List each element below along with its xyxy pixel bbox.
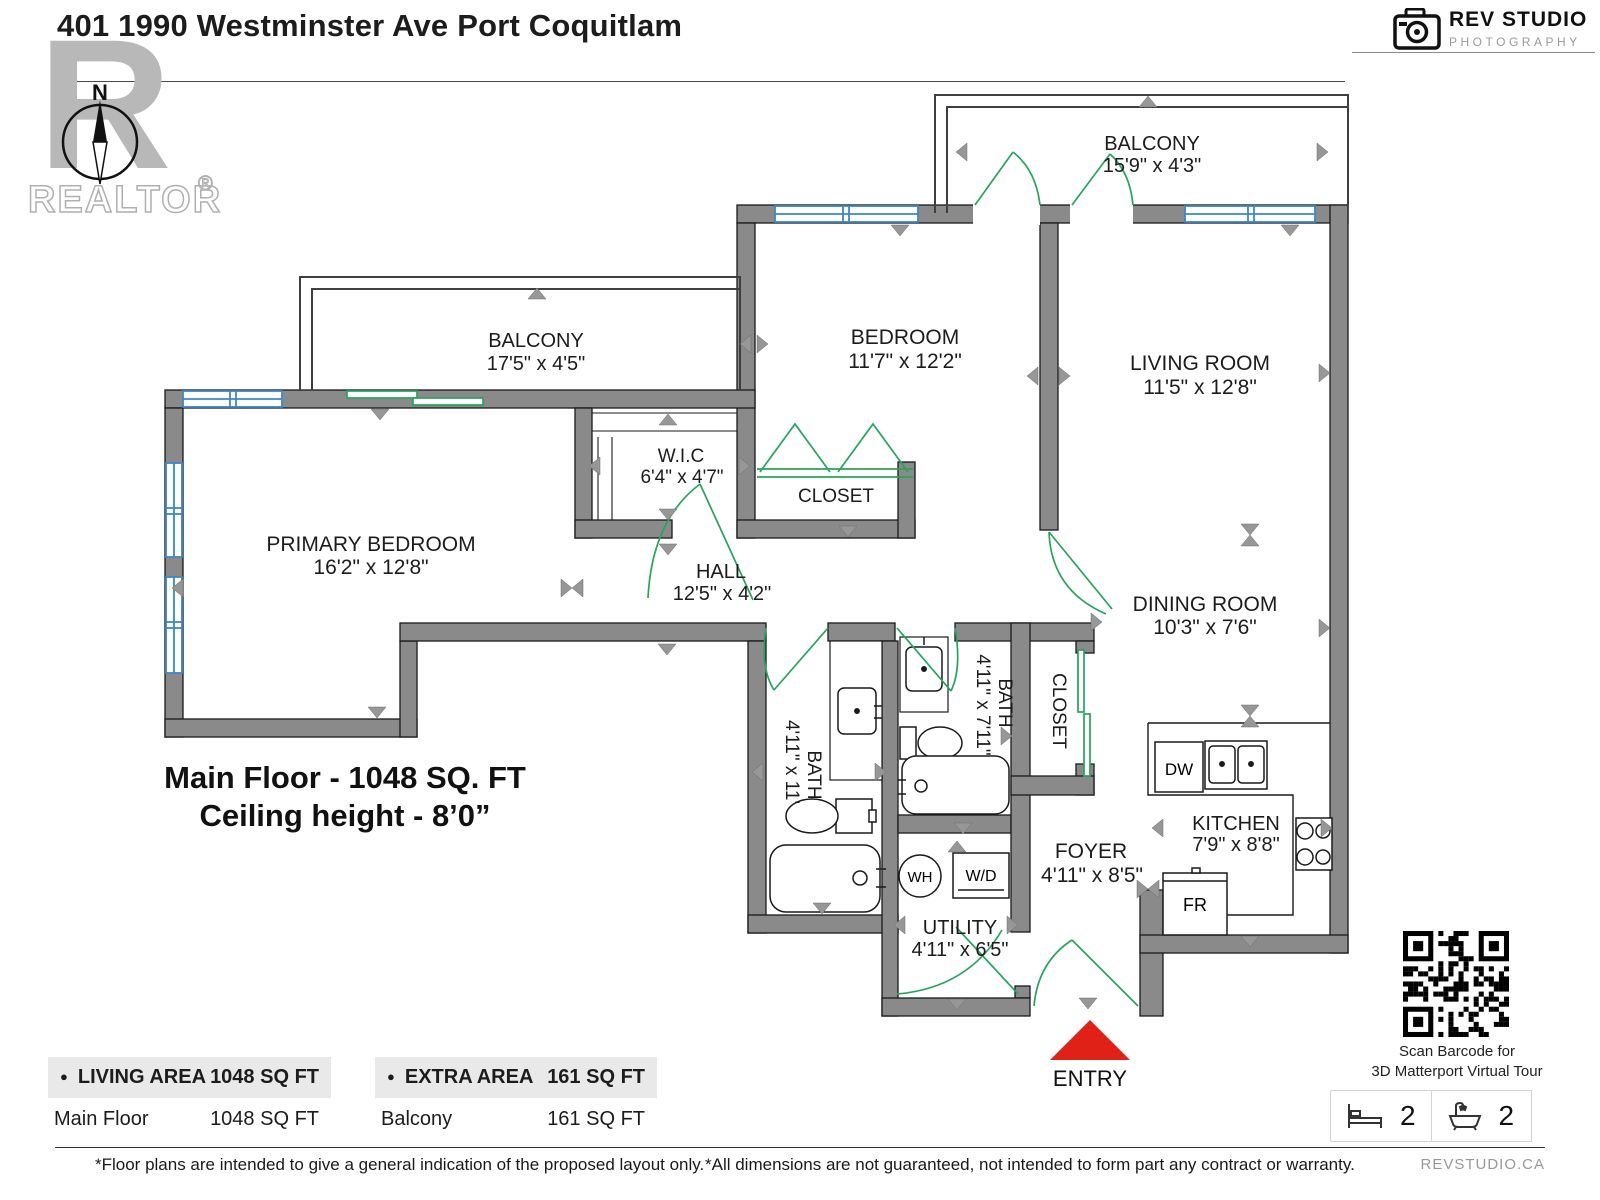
window-primary-top bbox=[183, 391, 282, 407]
label-closet-bedroom: CLOSET bbox=[798, 486, 874, 507]
bath-icon bbox=[1448, 1101, 1482, 1131]
bath-count: 2 bbox=[1498, 1100, 1514, 1132]
bedroom-door bbox=[1049, 532, 1112, 614]
label-bedroom: BEDROOM bbox=[851, 326, 960, 349]
bed-stat: 2 bbox=[1331, 1091, 1431, 1141]
living-area-table: ●LIVING AREA 1048 SQ FT Main Floor 1048 … bbox=[48, 1057, 331, 1131]
label-dining: DINING ROOM bbox=[1133, 593, 1278, 616]
qr-caption-line2: 3D Matterport Virtual Tour bbox=[1342, 1062, 1572, 1082]
entry-door bbox=[1034, 940, 1138, 1006]
dims-utility: 4'11" x 6'5" bbox=[911, 939, 1008, 961]
window-living bbox=[1185, 206, 1315, 222]
label-hall: HALL bbox=[696, 561, 746, 583]
realtor-wordmark: REALTOR bbox=[28, 179, 222, 221]
extra-area-header: ●EXTRA AREA 161 SQ FT bbox=[375, 1057, 657, 1098]
label-bath2: BATH bbox=[994, 678, 1015, 727]
bed-bath-stats: 2 2 bbox=[1330, 1090, 1532, 1142]
row-value: 161 SQ FT bbox=[547, 1108, 645, 1131]
bath1-door bbox=[764, 628, 828, 690]
extra-area-table: ●EXTRA AREA 161 SQ FT Balcony 161 SQ FT bbox=[375, 1057, 657, 1131]
dims-bath1: 4'11" x 11' bbox=[781, 720, 802, 804]
dims-dining: 10'3" x 7'6" bbox=[1153, 616, 1257, 639]
realtor-reg-mark: ® bbox=[198, 173, 213, 195]
bed-count: 2 bbox=[1400, 1100, 1416, 1132]
realtor-logo: R REALTOR ® N bbox=[28, 2, 222, 221]
label-primary: PRIMARY BEDROOM bbox=[266, 533, 475, 556]
dims-primary: 16'2" x 12'8" bbox=[313, 556, 428, 579]
kitchen-sink bbox=[1205, 741, 1267, 789]
dims-balcony-left: 17'5" x 4'5" bbox=[487, 353, 586, 375]
label-closet-foyer: CLOSET bbox=[1048, 673, 1069, 749]
qr-caption-line1: Scan Barcode for bbox=[1342, 1042, 1572, 1062]
floor-summary-line1: Main Floor - 1048 SQ. FT bbox=[164, 760, 526, 795]
extra-area-total: 161 SQ FT bbox=[547, 1066, 645, 1089]
dims-bedroom: 11'7" x 12'2" bbox=[848, 350, 962, 373]
bullet-icon: ● bbox=[60, 1069, 68, 1084]
dims-hall: 12'5" x 4'2" bbox=[673, 583, 772, 605]
label-balcony-left: BALCONY bbox=[488, 330, 584, 352]
dims-wic: 6'4" x 4'7" bbox=[640, 467, 723, 488]
window-primary-left-1 bbox=[166, 463, 182, 557]
qr-caption: Scan Barcode for 3D Matterport Virtual T… bbox=[1342, 1042, 1572, 1082]
extra-area-title: EXTRA AREA bbox=[405, 1066, 534, 1088]
living-area-title: LIVING AREA bbox=[78, 1066, 206, 1088]
label-wic: W.I.C bbox=[658, 446, 704, 467]
label-living: LIVING ROOM bbox=[1130, 352, 1270, 375]
label-dishwasher: DW bbox=[1165, 760, 1193, 779]
bullet-icon: ● bbox=[387, 1069, 395, 1084]
label-foyer: FOYER bbox=[1055, 840, 1127, 863]
label-water-heater: WH bbox=[908, 869, 933, 886]
dims-balcony-top: 15'9" x 4'3" bbox=[1103, 155, 1202, 177]
table-row: Main Floor 1048 SQ FT bbox=[48, 1098, 331, 1131]
label-washer-dryer: W/D bbox=[965, 868, 996, 885]
floor-plan: R REALTOR ® N bbox=[0, 0, 1600, 1200]
label-balcony-top: BALCONY bbox=[1104, 133, 1200, 155]
foyer-closet-slider bbox=[1078, 650, 1090, 776]
room-labels: BALCONY 15'9" x 4'3" BEDROOM 11'7" x 12'… bbox=[266, 133, 1280, 961]
footer-brand: REVSTUDIO.CA bbox=[1420, 1156, 1545, 1173]
table-row: Balcony 161 SQ FT bbox=[375, 1098, 657, 1131]
footnote-left: *Floor plans are intended to give a gene… bbox=[95, 1155, 704, 1175]
living-area-total: 1048 SQ FT bbox=[210, 1066, 319, 1089]
window-bedroom bbox=[775, 206, 918, 222]
qr-code bbox=[1403, 931, 1509, 1037]
footer-divider bbox=[55, 1147, 1545, 1148]
bath-stat: 2 bbox=[1431, 1091, 1532, 1141]
row-label: Balcony bbox=[381, 1108, 452, 1131]
label-fridge: FR bbox=[1183, 895, 1207, 915]
floor-summary: Main Floor - 1048 SQ. FT Ceiling height … bbox=[164, 760, 526, 833]
entry-label: ENTRY bbox=[1053, 1066, 1127, 1091]
row-label: Main Floor bbox=[54, 1108, 148, 1131]
dims-living: 11'5" x 12'8" bbox=[1143, 376, 1257, 399]
entry-marker: ENTRY bbox=[1050, 1020, 1130, 1091]
label-utility: UTILITY bbox=[923, 917, 997, 939]
dims-bath2: 4'11" x 7'11" bbox=[972, 654, 993, 755]
bed-icon bbox=[1346, 1103, 1384, 1129]
dims-foyer: 4'11" x 8'5" bbox=[1041, 864, 1143, 887]
footnote-right: *All dimensions are not guaranteed, not … bbox=[705, 1155, 1355, 1175]
bedroom-closet-bifold bbox=[757, 424, 913, 477]
balcony-door-1 bbox=[975, 152, 1040, 205]
living-area-header: ●LIVING AREA 1048 SQ FT bbox=[48, 1057, 331, 1098]
label-kitchen: KITCHEN bbox=[1192, 813, 1280, 835]
floor-summary-line2: Ceiling height - 8’0” bbox=[199, 798, 490, 833]
row-value: 1048 SQ FT bbox=[210, 1108, 319, 1131]
label-bath1: BATH bbox=[803, 750, 824, 799]
dims-kitchen: 7'9" x 8'8" bbox=[1192, 834, 1279, 856]
